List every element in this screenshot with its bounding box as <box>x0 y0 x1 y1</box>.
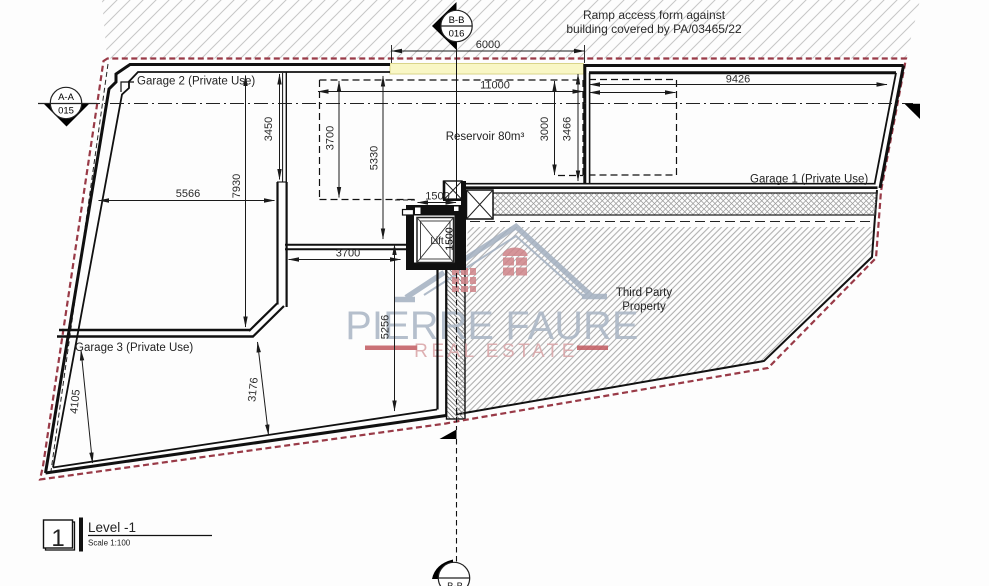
svg-text:Garage 3 (Private Use): Garage 3 (Private Use) <box>75 342 193 354</box>
svg-text:4105: 4105 <box>68 389 82 415</box>
svg-text:5566: 5566 <box>176 188 200 200</box>
svg-text:Lift: Lift <box>430 236 444 247</box>
svg-text:11000: 11000 <box>480 80 510 92</box>
svg-text:Garage 1 (Private Use): Garage 1 (Private Use) <box>750 174 868 186</box>
svg-text:1500: 1500 <box>444 227 456 251</box>
svg-text:REAL ESTATE: REAL ESTATE <box>414 341 578 362</box>
svg-text:A-A: A-A <box>58 92 75 103</box>
svg-text:1: 1 <box>51 525 64 552</box>
svg-text:B-B: B-B <box>449 15 465 26</box>
svg-text:building covered by PA/03465/2: building covered by PA/03465/22 <box>566 22 742 36</box>
svg-text:Level -1: Level -1 <box>88 520 136 535</box>
svg-text:1500: 1500 <box>425 191 449 203</box>
svg-text:5330: 5330 <box>369 146 381 170</box>
svg-text:3700: 3700 <box>325 126 337 150</box>
svg-text:7930: 7930 <box>231 174 243 198</box>
svg-text:3466: 3466 <box>562 117 574 141</box>
svg-text:Garage 2 (Private Use): Garage 2 (Private Use) <box>137 76 255 88</box>
svg-text:3176: 3176 <box>246 377 260 403</box>
svg-text:Third Party: Third Party <box>616 287 672 299</box>
svg-text:3450: 3450 <box>263 117 275 141</box>
svg-text:Property: Property <box>622 301 666 313</box>
svg-text:Ramp access form against: Ramp access form against <box>583 8 726 22</box>
svg-text:015: 015 <box>58 106 74 117</box>
svg-text:9426: 9426 <box>726 74 750 86</box>
svg-text:Scale 1:100: Scale 1:100 <box>88 539 131 548</box>
svg-text:016: 016 <box>449 29 465 40</box>
svg-text:5256: 5256 <box>380 315 392 339</box>
svg-text:B-B: B-B <box>447 581 463 586</box>
svg-text:3700: 3700 <box>336 248 360 260</box>
svg-text:Reservoir 80m³: Reservoir 80m³ <box>446 131 525 143</box>
svg-text:3000: 3000 <box>539 117 551 141</box>
svg-text:6000: 6000 <box>476 39 500 51</box>
